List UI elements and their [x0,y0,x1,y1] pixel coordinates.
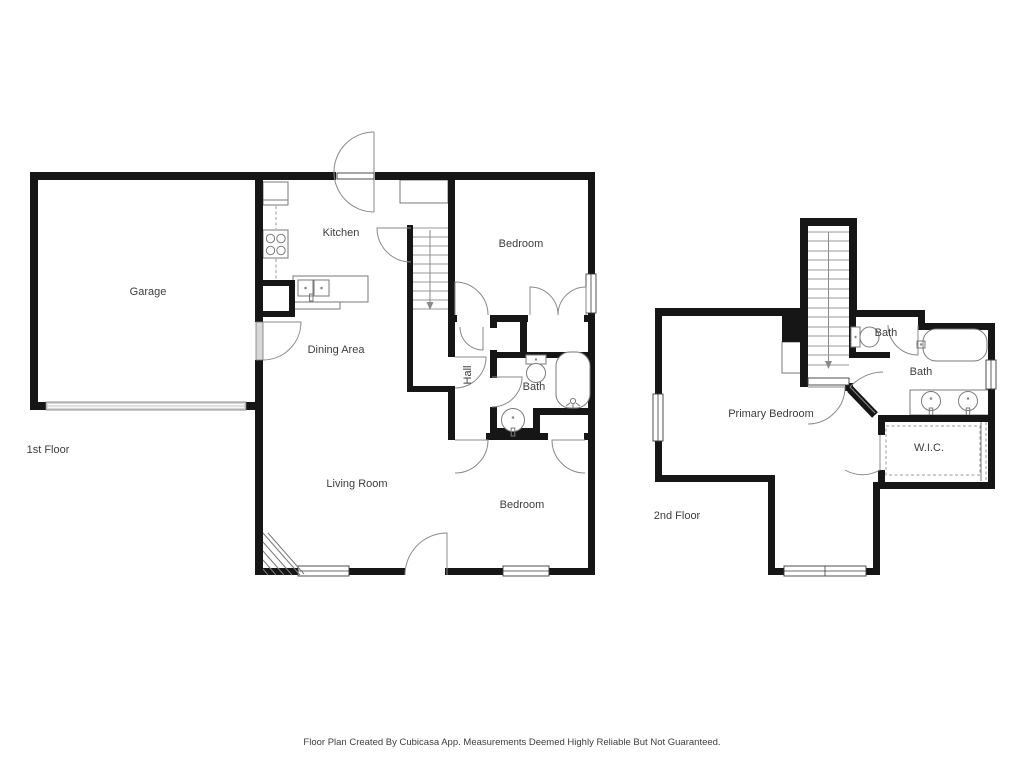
bathtub-icon [917,329,987,361]
floor-plan-drawing: Garage Kitchen Bedroom Dining Area Hall … [0,0,1024,768]
stove-icon [263,230,288,258]
footer-disclaimer: Floor Plan Created By Cubicasa App. Meas… [303,737,720,748]
room-label-bedroom-bottom: Bedroom [500,499,545,511]
entry-closet [400,180,448,203]
window [503,566,549,576]
bathtub-icon [556,352,590,408]
floor-1-plan: Garage Kitchen Bedroom Dining Area Hall … [27,132,596,576]
stair-landing-door-panel [808,378,849,385]
room-label-wic: W.I.C. [914,442,944,454]
window [986,360,996,389]
garage-door [46,402,246,410]
entry-door [334,132,374,212]
door-arc [455,440,488,473]
diagonal-wall [850,389,875,415]
room-label-living-room: Living Room [326,478,387,490]
shelf [782,342,803,373]
floor1-walls [30,172,595,575]
room-label-garage: Garage [130,286,167,298]
window [784,566,866,576]
room-label-hall: Hall [462,366,474,385]
door-arc [377,228,411,262]
door-arc [492,377,522,407]
window [653,394,663,441]
room-label-bath: Bath [523,381,546,393]
window [586,274,596,313]
floor-2-plan: Bath Bath Primary Bedroom W.I.C. 2nd Flo… [653,218,996,576]
floor-2-label: 2nd Floor [654,510,701,522]
room-label-bedroom-top: Bedroom [499,238,544,250]
room-label-bath-small: Bath [875,327,898,339]
room-label-primary-bedroom: Primary Bedroom [728,408,814,420]
refrigerator-icon [263,182,288,205]
stairs-up [808,232,849,385]
door-arc [455,282,488,315]
door-arc [552,440,585,473]
room-label-dining-area: Dining Area [308,344,366,356]
door-arc [256,322,301,360]
door-arc [405,533,447,575]
stairs-down [413,228,448,310]
floor-1-label: 1st Floor [27,444,70,456]
double-vanity-icon [910,390,989,415]
room-label-kitchen: Kitchen [323,227,360,239]
closet-double-doors [530,287,586,315]
window [298,566,349,576]
toilet-icon [526,355,546,383]
floor-plan-page: Garage Kitchen Bedroom Dining Area Hall … [0,0,1024,768]
room-label-bath-main: Bath [910,366,933,378]
door-arc [845,435,880,475]
door-arc [460,327,483,350]
